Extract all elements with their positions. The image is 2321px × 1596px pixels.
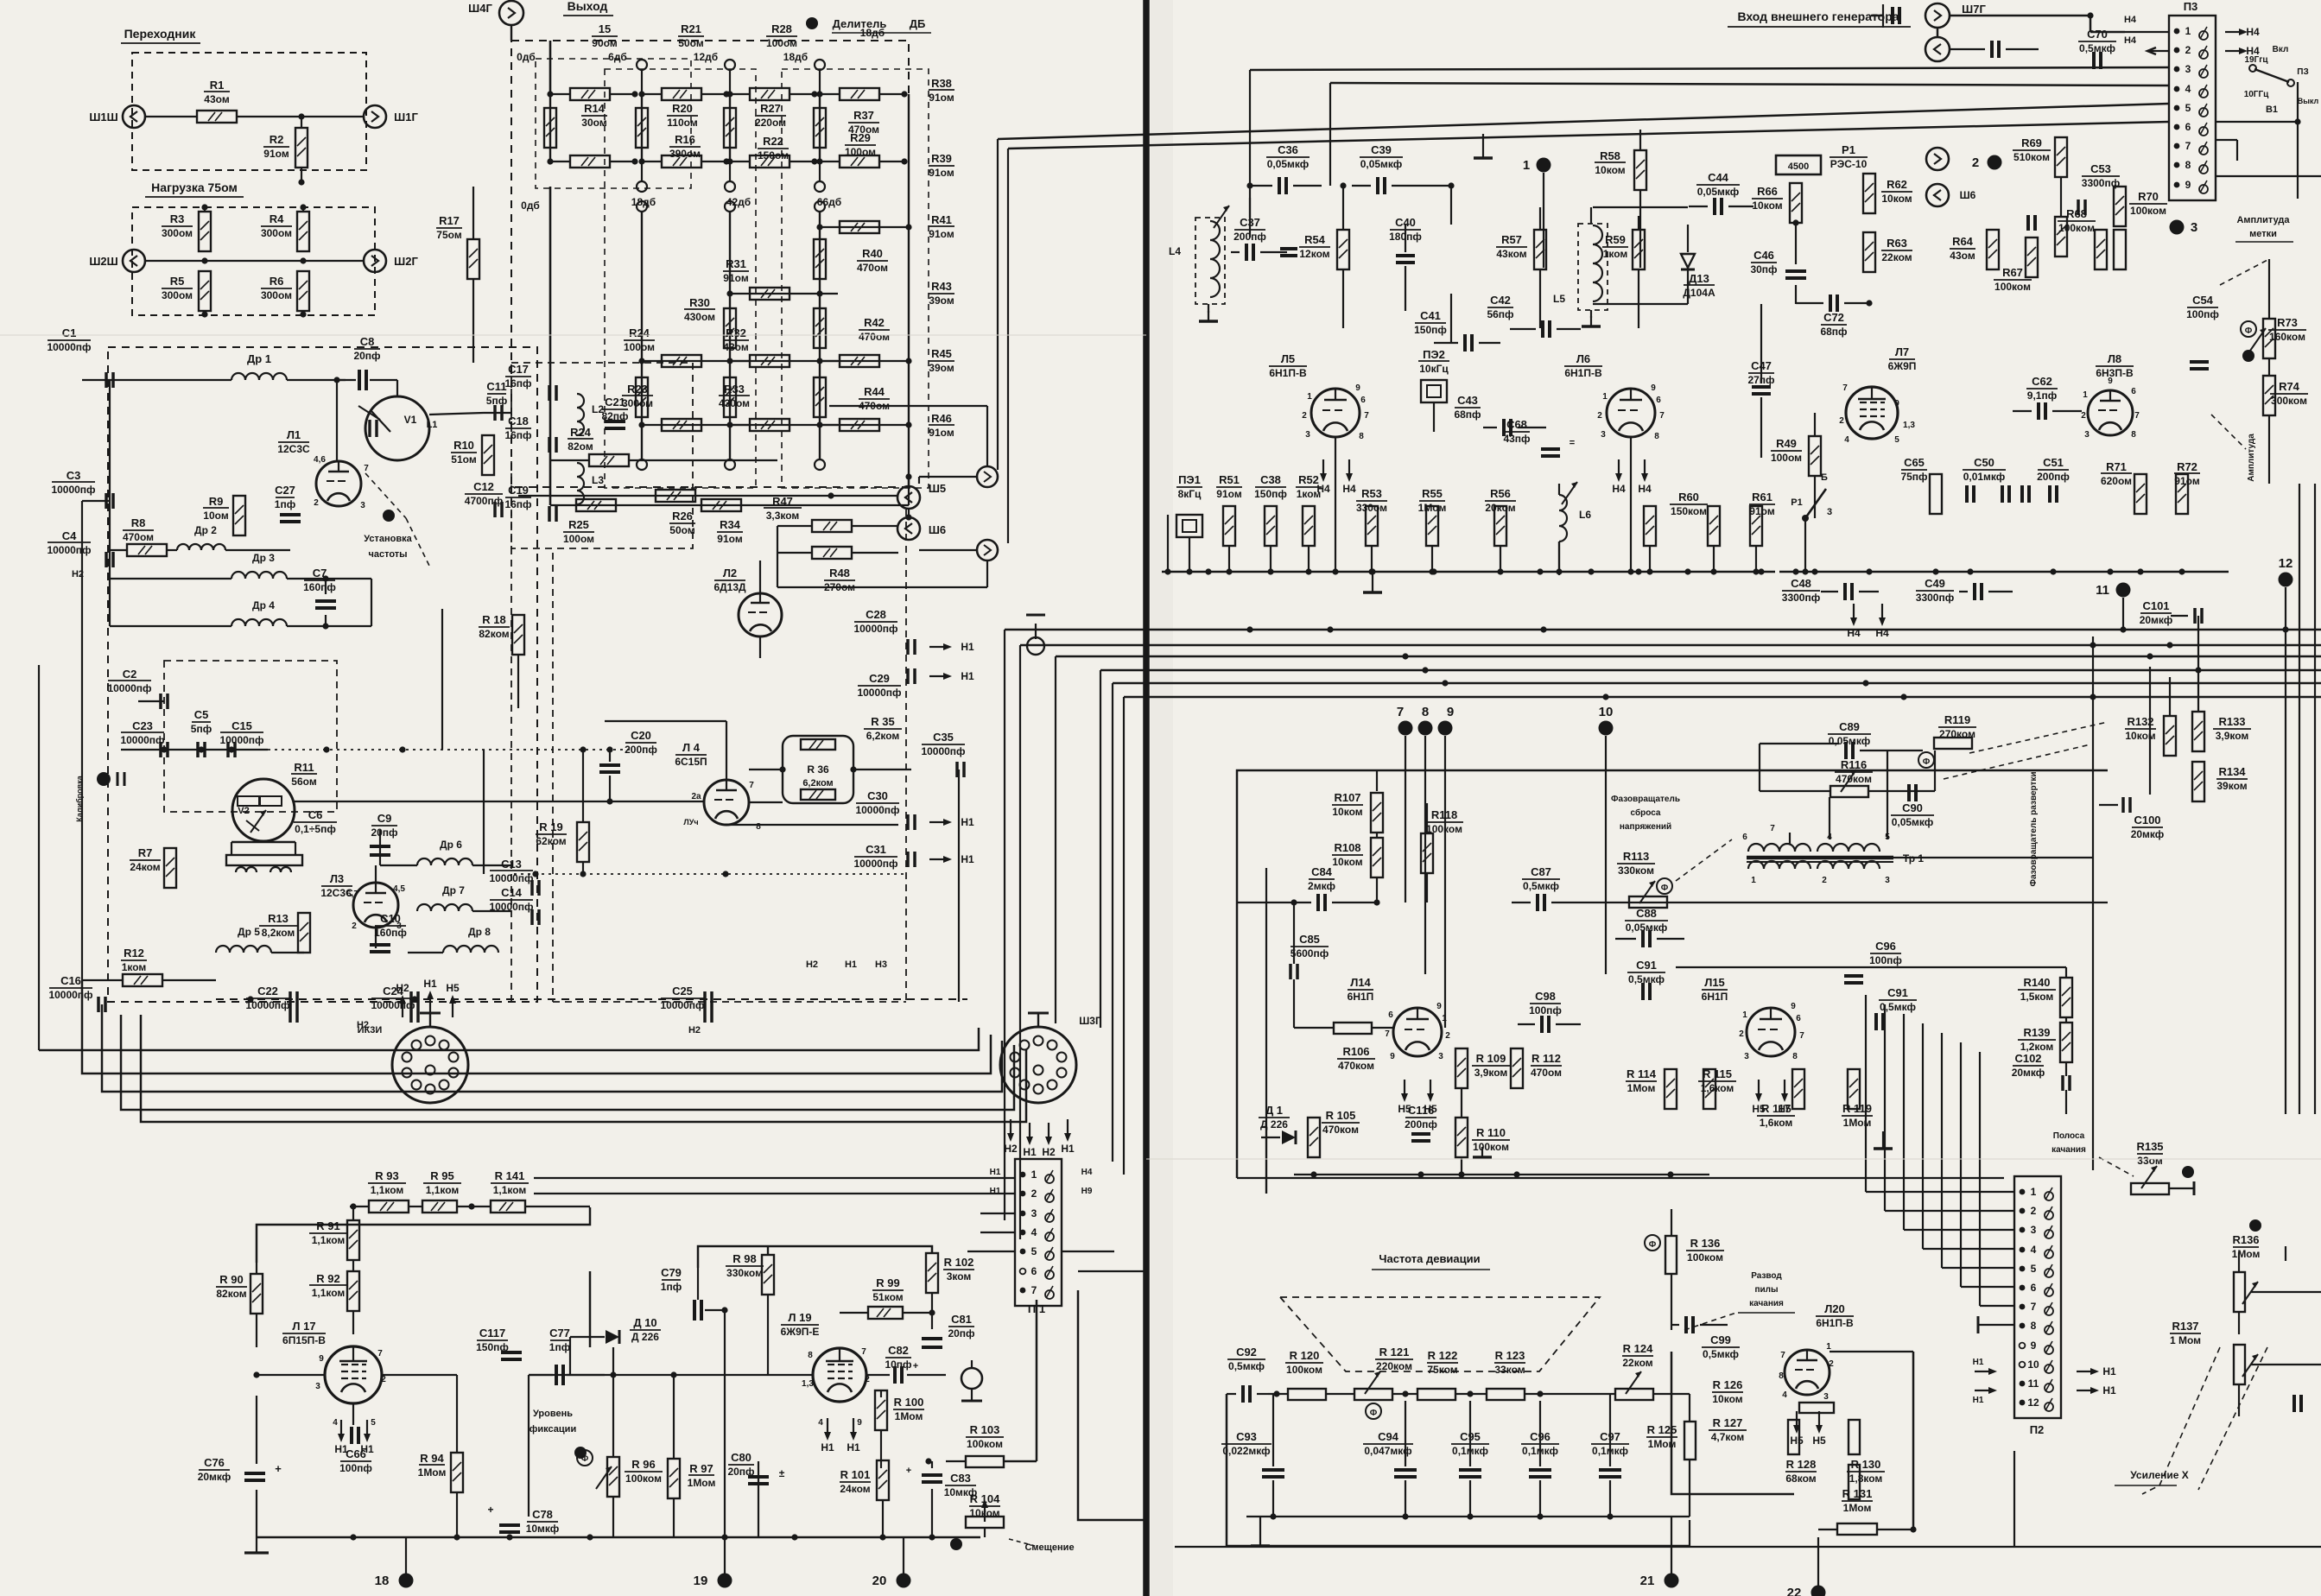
svg-text:2: 2	[1302, 411, 1307, 421]
svg-text:С25: С25	[672, 985, 693, 997]
svg-text:16пф: 16пф	[504, 377, 532, 389]
svg-text:С62: С62	[2032, 375, 2052, 388]
svg-text:Н9: Н9	[1081, 1187, 1093, 1196]
svg-text:R 126: R 126	[1713, 1378, 1743, 1391]
svg-text:R2: R2	[270, 133, 284, 146]
svg-text:200пф: 200пф	[1405, 1118, 1437, 1130]
svg-text:18дб: 18дб	[783, 51, 808, 63]
svg-text:R6: R6	[270, 275, 284, 288]
svg-text:качания: качания	[1749, 1299, 1784, 1308]
svg-text:5: 5	[1885, 833, 1890, 842]
svg-text:V1: V1	[404, 414, 417, 426]
svg-text:С10: С10	[380, 912, 401, 925]
svg-text:R25: R25	[568, 518, 589, 531]
svg-text:91ом: 91ом	[2174, 475, 2200, 487]
svg-text:6: 6	[1388, 1010, 1393, 1020]
svg-text:10пф: 10пф	[885, 1358, 912, 1371]
svg-text:75ом: 75ом	[436, 229, 462, 241]
svg-text:43ом: 43ом	[204, 93, 230, 105]
svg-text:100ком: 100ком	[625, 1472, 662, 1485]
svg-text:7: 7	[1397, 705, 1404, 719]
svg-text:1Мом: 1Мом	[1843, 1117, 1872, 1129]
svg-text:ПЭ2: ПЭ2	[1423, 348, 1445, 361]
svg-text:+: +	[913, 1361, 918, 1371]
svg-text:Ф: Ф	[1649, 1240, 1657, 1250]
svg-text:Уровень: Уровень	[533, 1409, 573, 1419]
svg-text:1 Мом: 1 Мом	[2170, 1334, 2201, 1346]
svg-text:R22: R22	[763, 135, 783, 148]
svg-text:100ком: 100ком	[2130, 205, 2166, 217]
svg-text:Л6: Л6	[1576, 352, 1590, 365]
svg-text:8кГц: 8кГц	[1178, 488, 1202, 500]
svg-text:7: 7	[1385, 1029, 1390, 1039]
svg-text:6: 6	[2185, 121, 2191, 133]
svg-text:91ом: 91ом	[263, 148, 289, 160]
svg-text:100ком: 100ком	[1426, 823, 1462, 835]
svg-text:С16: С16	[60, 974, 81, 987]
svg-text:Н1: Н1	[847, 1441, 860, 1453]
svg-text:R68: R68	[2066, 207, 2087, 220]
svg-text:R139: R139	[2023, 1026, 2050, 1039]
svg-text:L1: L1	[427, 420, 438, 430]
svg-text:R 110: R 110	[1476, 1126, 1506, 1139]
svg-text:=: =	[1570, 438, 1575, 448]
svg-text:ЛУч: ЛУч	[683, 818, 698, 826]
svg-text:R69: R69	[2021, 136, 2042, 149]
svg-text:R140: R140	[2023, 976, 2050, 989]
svg-text:С92: С92	[1236, 1346, 1257, 1358]
svg-text:6,7: 6,7	[346, 890, 358, 899]
svg-text:Усиление Х: Усиление Х	[2130, 1469, 2189, 1481]
svg-text:С96: С96	[1875, 940, 1896, 953]
svg-text:Р1: Р1	[1791, 497, 1802, 508]
svg-text:2: 2	[352, 921, 357, 931]
svg-text:Н1: Н1	[961, 853, 974, 865]
svg-text:Ш3Г: Ш3Г	[1079, 1015, 1101, 1027]
svg-text:R119: R119	[1944, 713, 1970, 726]
svg-text:L4: L4	[1169, 245, 1181, 257]
svg-text:4: 4	[1782, 1390, 1787, 1400]
svg-text:В1: В1	[2266, 104, 2278, 115]
svg-text:R14: R14	[584, 102, 606, 115]
svg-text:С41: С41	[1420, 309, 1441, 322]
svg-text:Н1: Н1	[1973, 1396, 1984, 1405]
svg-text:10кГц: 10кГц	[1419, 363, 1449, 375]
svg-text:Л3: Л3	[330, 872, 344, 885]
svg-text:С65: С65	[1904, 456, 1925, 469]
svg-text:R 35: R 35	[871, 715, 894, 728]
svg-text:1,3: 1,3	[1903, 421, 1915, 430]
svg-text:10000пф: 10000пф	[120, 734, 165, 746]
svg-text:5пф: 5пф	[486, 395, 508, 407]
svg-text:2: 2	[2185, 44, 2191, 56]
svg-text:1,1ком: 1,1ком	[371, 1184, 404, 1196]
svg-text:10ом: 10ом	[203, 510, 229, 522]
svg-text:С51: С51	[2043, 456, 2064, 469]
svg-text:220ом: 220ом	[755, 117, 786, 129]
svg-text:20ком: 20ком	[1485, 502, 1515, 514]
svg-text:2: 2	[1597, 411, 1602, 421]
svg-text:R61: R61	[1752, 491, 1772, 503]
svg-text:Н1: Н1	[821, 1441, 834, 1453]
svg-text:Переходник: Переходник	[124, 27, 197, 41]
svg-text:1Мом: 1Мом	[1627, 1082, 1656, 1094]
svg-text:качания: качания	[2051, 1145, 2086, 1155]
svg-text:R8: R8	[131, 516, 146, 529]
svg-text:7: 7	[1659, 411, 1665, 421]
svg-text:R55: R55	[1422, 487, 1443, 500]
svg-text:R53: R53	[1361, 487, 1382, 500]
svg-text:С4: С4	[62, 529, 77, 542]
svg-text:10000пф: 10000пф	[853, 858, 898, 870]
svg-text:6,2ком: 6,2ком	[866, 730, 900, 742]
svg-text:Н1: Н1	[1973, 1358, 1984, 1367]
svg-text:1Мом: 1Мом	[1843, 1502, 1872, 1514]
svg-text:Н4: Н4	[1875, 627, 1889, 639]
svg-text:R28: R28	[771, 22, 792, 35]
svg-text:Н5: Н5	[446, 982, 460, 994]
svg-text:10000пф: 10000пф	[371, 999, 415, 1011]
svg-text:R 99: R 99	[876, 1276, 899, 1289]
svg-text:Н2: Н2	[1004, 1143, 1018, 1155]
svg-text:С54: С54	[2192, 294, 2214, 307]
svg-text:Ф: Ф	[1370, 1409, 1378, 1418]
svg-text:Р1: Р1	[1842, 143, 1855, 156]
svg-text:R118: R118	[1431, 808, 1457, 821]
svg-text:82ком: 82ком	[216, 1288, 246, 1300]
svg-text:9: 9	[857, 1418, 862, 1428]
svg-text:82ком: 82ком	[479, 628, 509, 640]
svg-text:R 141: R 141	[495, 1169, 525, 1182]
svg-text:R135: R135	[2136, 1140, 2163, 1153]
svg-text:С30: С30	[867, 789, 888, 802]
svg-text:82ом: 82ом	[568, 440, 593, 453]
svg-text:Н4: Н4	[2246, 26, 2260, 38]
svg-text:Др 4: Др 4	[252, 599, 275, 611]
svg-text:3ком: 3ком	[947, 1270, 972, 1282]
svg-text:Н1: Н1	[845, 959, 857, 970]
svg-text:100пф: 100пф	[2186, 308, 2219, 320]
svg-text:Л8: Л8	[2108, 352, 2121, 365]
svg-text:R74: R74	[2279, 380, 2300, 393]
svg-text:С3: С3	[67, 469, 81, 482]
svg-text:300ом: 300ом	[162, 289, 193, 301]
svg-text:16пф: 16пф	[504, 498, 532, 510]
svg-text:Тр 1: Тр 1	[1903, 852, 1925, 864]
svg-text:5: 5	[2185, 102, 2191, 114]
svg-text:470ом: 470ом	[123, 531, 154, 543]
svg-text:1: 1	[1523, 158, 1530, 173]
svg-text:1Мом: 1Мом	[688, 1477, 716, 1489]
svg-text:3300пф: 3300пф	[1916, 592, 1955, 604]
svg-text:С76: С76	[204, 1456, 225, 1469]
svg-text:ДБ: ДБ	[910, 17, 926, 30]
svg-text:100ком: 100ком	[967, 1438, 1003, 1450]
svg-text:R13: R13	[268, 912, 289, 925]
svg-text:6: 6	[1742, 833, 1747, 842]
svg-text:20мкф: 20мкф	[2131, 828, 2165, 840]
svg-text:0,05мкф: 0,05мкф	[1892, 816, 1934, 828]
svg-text:напряжений: напряжений	[1620, 822, 1671, 832]
svg-text:6: 6	[1360, 396, 1366, 405]
svg-text:R31: R31	[726, 257, 746, 270]
svg-text:33ком: 33ком	[1494, 1364, 1525, 1376]
svg-text:8: 8	[1654, 432, 1659, 441]
svg-text:7: 7	[1799, 1031, 1804, 1041]
svg-text:С77: С77	[549, 1327, 570, 1339]
svg-text:7: 7	[1842, 383, 1848, 393]
svg-text:100ом: 100ом	[563, 533, 594, 545]
svg-text:Н5: Н5	[1812, 1434, 1826, 1447]
svg-text:2а: 2а	[691, 792, 701, 801]
svg-text:3: 3	[1601, 430, 1606, 440]
svg-text:L3: L3	[592, 474, 604, 486]
svg-text:R 121: R 121	[1379, 1346, 1410, 1358]
svg-text:220ком: 220ком	[1376, 1360, 1412, 1372]
svg-text:С1: С1	[62, 326, 77, 339]
svg-text:1Мом: 1Мом	[1418, 502, 1447, 514]
svg-text:R108: R108	[1334, 841, 1360, 854]
svg-text:Н1: Н1	[1061, 1143, 1075, 1155]
svg-text:2: 2	[2081, 411, 2086, 421]
svg-text:R134: R134	[2218, 765, 2246, 778]
svg-text:91ом: 91ом	[929, 427, 954, 439]
svg-text:33ом: 33ом	[2137, 1155, 2163, 1167]
svg-text:7: 7	[1031, 1284, 1037, 1296]
svg-text:5: 5	[1894, 435, 1899, 445]
svg-text:R56: R56	[1490, 487, 1511, 500]
svg-text:11: 11	[2028, 1377, 2039, 1390]
svg-text:7: 7	[749, 781, 754, 790]
svg-text:Н1: Н1	[961, 641, 974, 653]
svg-text:5: 5	[1031, 1245, 1037, 1257]
svg-text:2: 2	[1829, 1359, 1834, 1369]
svg-text:150ом: 150ом	[758, 149, 789, 161]
svg-text:С72: С72	[1823, 311, 1844, 324]
svg-text:6Н3П-В: 6Н3П-В	[2096, 367, 2134, 379]
svg-text:11: 11	[2096, 583, 2109, 598]
svg-text:Н4: Н4	[1612, 483, 1626, 495]
svg-text:3: 3	[2185, 63, 2191, 75]
svg-text:12: 12	[2027, 1396, 2039, 1409]
svg-text:фиксации: фиксации	[530, 1424, 576, 1434]
svg-text:R5: R5	[170, 275, 185, 288]
svg-text:8: 8	[1792, 1052, 1798, 1061]
svg-text:4: 4	[1844, 435, 1849, 445]
svg-text:3: 3	[1438, 1052, 1443, 1061]
svg-text:1,3: 1,3	[802, 1379, 814, 1389]
svg-text:100ом: 100ом	[1771, 452, 1802, 464]
svg-text:1Мом: 1Мом	[418, 1466, 447, 1479]
svg-text:С11: С11	[486, 380, 506, 393]
svg-text:10000пф: 10000пф	[51, 484, 96, 496]
svg-text:22: 22	[1787, 1586, 1802, 1596]
svg-text:4: 4	[2185, 83, 2191, 95]
svg-text:Частота девиации: Частота девиации	[1379, 1252, 1480, 1265]
svg-text:4500: 4500	[1788, 161, 1809, 172]
svg-text:9: 9	[1390, 1052, 1395, 1061]
svg-text:4: 4	[333, 1418, 338, 1428]
svg-text:6П15П-В: 6П15П-В	[282, 1334, 326, 1346]
svg-text:R52: R52	[1298, 473, 1319, 486]
svg-text:10ком: 10ком	[1332, 806, 1362, 818]
svg-text:R 128: R 128	[1786, 1458, 1817, 1471]
svg-text:С68: С68	[1506, 418, 1527, 431]
svg-text:R48: R48	[829, 567, 850, 579]
svg-text:С31: С31	[866, 843, 886, 856]
svg-text:5: 5	[371, 1418, 376, 1428]
svg-text:С79: С79	[661, 1266, 682, 1279]
svg-text:24ком: 24ком	[840, 1483, 870, 1495]
svg-text:270ком: 270ком	[1939, 728, 1975, 740]
svg-text:1,1ком: 1,1ком	[426, 1184, 460, 1196]
svg-text:R 109: R 109	[1476, 1052, 1506, 1065]
svg-text:10: 10	[1599, 705, 1614, 719]
svg-text:12С3С: 12С3С	[277, 443, 310, 455]
svg-text:56пф: 56пф	[1487, 308, 1514, 320]
svg-text:Н5: Н5	[1790, 1434, 1804, 1447]
svg-text:R29: R29	[850, 131, 871, 144]
svg-text:Фазовращатель развертки: Фазовращатель развертки	[2029, 771, 2039, 886]
svg-text:Н4: Н4	[1638, 483, 1652, 495]
svg-text:7: 7	[2185, 140, 2191, 152]
svg-text:0,5мкф: 0,5мкф	[1228, 1360, 1265, 1372]
svg-text:С98: С98	[1535, 990, 1556, 1003]
svg-text:Н1: Н1	[961, 670, 974, 682]
svg-text:С117: С117	[479, 1327, 505, 1339]
svg-text:10ком: 10ком	[1752, 199, 1782, 212]
svg-text:С28: С28	[866, 608, 886, 621]
svg-text:6: 6	[1656, 396, 1661, 405]
svg-text:8: 8	[2131, 430, 2136, 440]
svg-text:R 127: R 127	[1713, 1416, 1743, 1429]
svg-text:68ком: 68ком	[1785, 1472, 1816, 1485]
svg-text:R24: R24	[570, 426, 592, 439]
svg-text:Н4: Н4	[2124, 35, 2137, 46]
svg-text:9: 9	[319, 1354, 324, 1364]
svg-text:3,9ком: 3,9ком	[2216, 730, 2249, 742]
svg-text:R20: R20	[672, 102, 693, 115]
svg-text:30пф: 30пф	[1750, 263, 1778, 275]
svg-text:0,05мкф: 0,05мкф	[1829, 735, 1871, 747]
svg-text:91ом: 91ом	[929, 228, 954, 240]
svg-text:8: 8	[2031, 1320, 2037, 1332]
svg-text:10: 10	[2027, 1358, 2039, 1371]
svg-text:Ш5: Ш5	[929, 482, 946, 495]
svg-text:75ком: 75ком	[1427, 1364, 1457, 1376]
svg-text:ИК3И: ИК3И	[358, 1025, 383, 1035]
svg-text:L6: L6	[1579, 509, 1591, 521]
svg-text:100ком: 100ком	[1473, 1141, 1509, 1153]
svg-text:R1: R1	[210, 79, 225, 92]
svg-text:4700пф: 4700пф	[465, 495, 504, 507]
svg-text:510ком: 510ком	[2013, 151, 2050, 163]
svg-text:R 117: R 117	[1761, 1102, 1791, 1115]
svg-text:0,5мкф: 0,5мкф	[2079, 42, 2115, 54]
svg-text:Др 2: Др 2	[194, 524, 217, 536]
svg-text:2: 2	[1739, 1029, 1744, 1039]
svg-text:30ом: 30ом	[581, 117, 607, 129]
svg-text:R 93: R 93	[375, 1169, 398, 1182]
svg-text:Развод: Развод	[1751, 1271, 1782, 1281]
svg-text:R 136: R 136	[1690, 1237, 1721, 1250]
svg-text:75пф: 75пф	[1900, 471, 1928, 483]
svg-text:0дб: 0дб	[521, 199, 540, 212]
svg-text:6Н1П: 6Н1П	[1348, 991, 1374, 1003]
svg-text:R 105: R 105	[1326, 1109, 1356, 1122]
svg-text:2: 2	[381, 1375, 386, 1384]
svg-text:R39: R39	[931, 152, 952, 165]
svg-text:R27: R27	[760, 102, 781, 115]
svg-text:С29: С29	[869, 672, 890, 685]
svg-text:160пф: 160пф	[303, 581, 336, 593]
svg-text:200пф: 200пф	[2037, 471, 2070, 483]
svg-text:Н1: Н1	[961, 816, 974, 828]
svg-text:Выход: Выход	[568, 0, 608, 13]
svg-text:91ом: 91ом	[929, 167, 954, 179]
svg-text:Др 5: Др 5	[238, 926, 260, 938]
svg-text:300ом: 300ом	[162, 227, 193, 239]
svg-text:С50: С50	[1974, 456, 1994, 469]
svg-text:R 122: R 122	[1428, 1349, 1458, 1362]
svg-text:R11: R11	[294, 761, 314, 774]
svg-text:R 119: R 119	[1842, 1102, 1872, 1115]
svg-text:частоты: частоты	[368, 549, 407, 560]
svg-text:R113: R113	[1623, 850, 1649, 863]
svg-text:Л 19: Л 19	[788, 1311, 811, 1324]
svg-text:3: 3	[360, 501, 365, 510]
svg-text:С87: С87	[1531, 865, 1551, 878]
svg-text:R 102: R 102	[944, 1256, 974, 1269]
svg-text:С35: С35	[933, 731, 954, 744]
svg-text:90ом: 90ом	[592, 37, 618, 49]
svg-text:+: +	[487, 1504, 493, 1516]
svg-text:С81: С81	[951, 1313, 972, 1326]
svg-text:3: 3	[2191, 220, 2197, 235]
svg-text:R37: R37	[853, 109, 874, 122]
svg-text:С9: С9	[377, 812, 392, 825]
svg-text:6дб: 6дб	[608, 51, 627, 63]
svg-text:R7: R7	[138, 846, 153, 859]
svg-text:7: 7	[1364, 411, 1369, 421]
svg-text:9: 9	[2108, 377, 2113, 386]
svg-text:R66: R66	[1757, 185, 1778, 198]
svg-text:160ком: 160ком	[2269, 331, 2305, 343]
svg-text:100ом: 100ом	[624, 341, 655, 353]
svg-text:R 100: R 100	[894, 1396, 924, 1409]
svg-text:R 98: R 98	[732, 1252, 756, 1265]
svg-text:Л7: Л7	[1895, 345, 1909, 358]
svg-text:Ш2Ш: Ш2Ш	[89, 255, 117, 268]
svg-text:R40: R40	[862, 247, 883, 260]
svg-text:620ом: 620ом	[2101, 475, 2132, 487]
svg-text:9: 9	[1355, 383, 1360, 393]
svg-text:ПЭ1: ПЭ1	[1178, 473, 1201, 486]
svg-text:6: 6	[2131, 387, 2136, 396]
svg-text:100пф: 100пф	[339, 1462, 372, 1474]
svg-text:1: 1	[1031, 1168, 1037, 1181]
svg-text:100пф: 100пф	[1869, 954, 1902, 966]
svg-text:0,5мкф: 0,5мкф	[1628, 973, 1665, 985]
svg-text:2: 2	[1031, 1187, 1037, 1200]
svg-text:R136: R136	[2232, 1233, 2259, 1246]
svg-text:8: 8	[1422, 705, 1429, 719]
svg-text:18: 18	[375, 1574, 390, 1588]
svg-text:330ком: 330ком	[726, 1267, 763, 1279]
svg-text:С27: С27	[275, 484, 295, 497]
svg-text:Ш6: Ш6	[1960, 189, 1976, 201]
svg-text:R9: R9	[209, 495, 224, 508]
